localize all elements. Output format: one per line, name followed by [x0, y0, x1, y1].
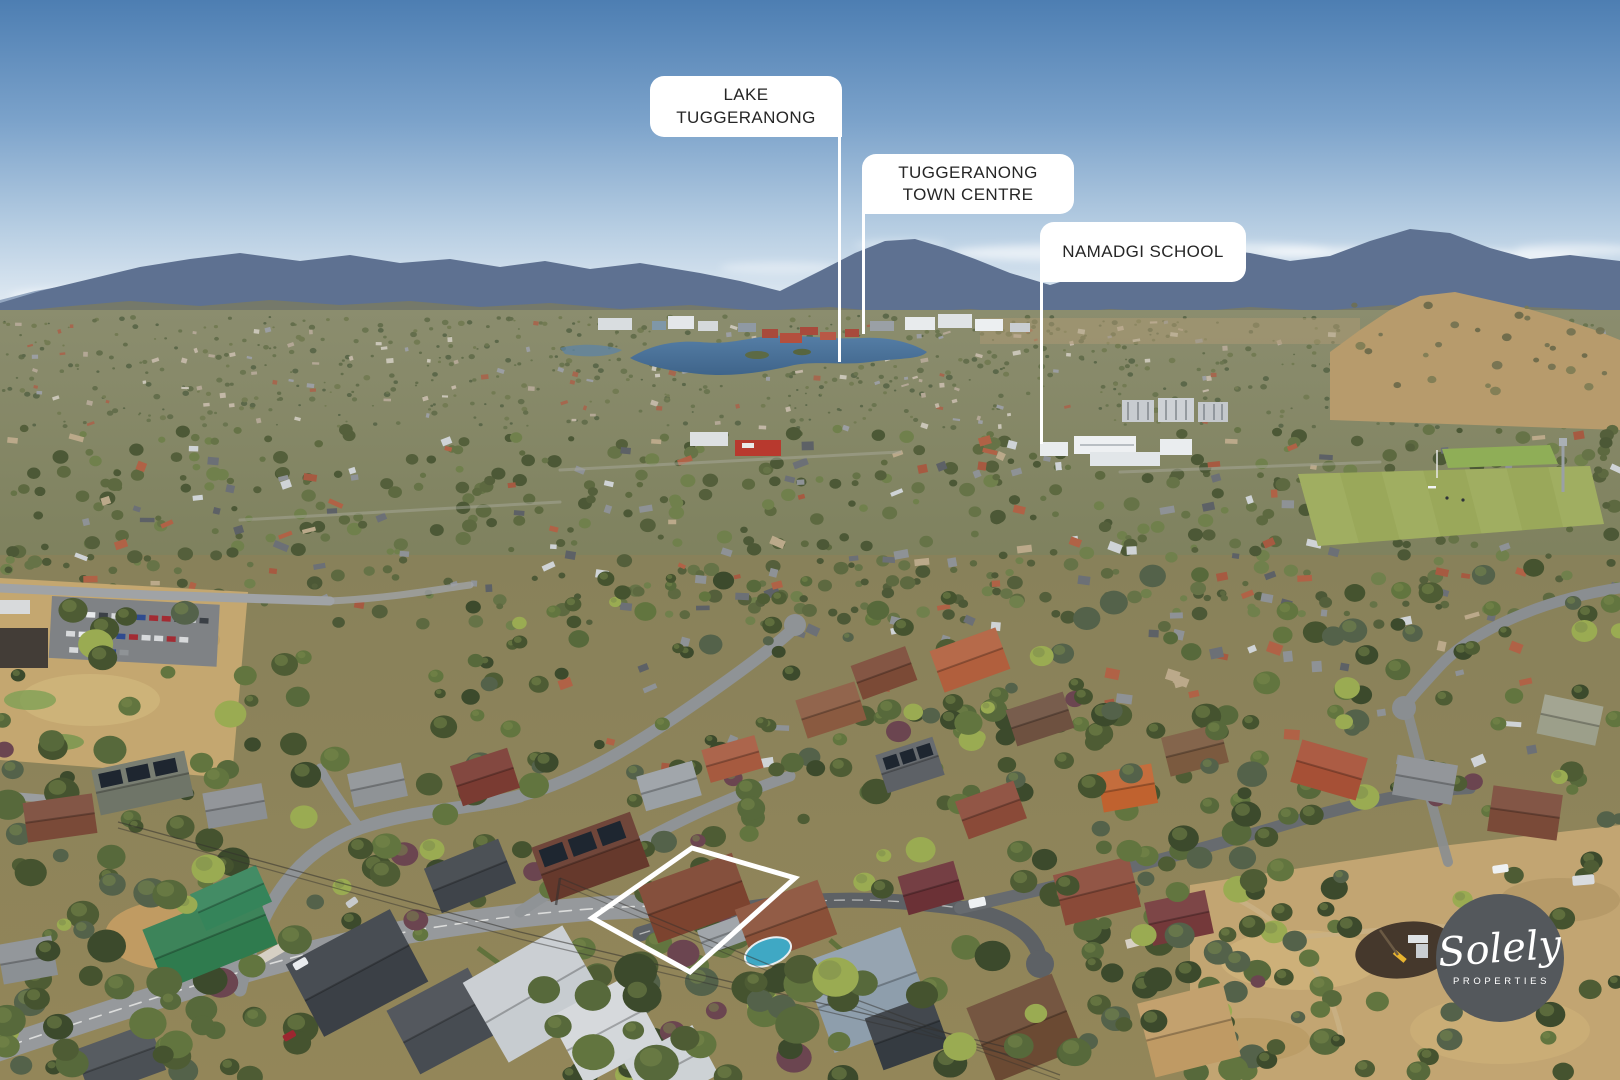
callout-lake-line-2: TUGGERANONG: [676, 107, 815, 129]
aerial-photo-scene: [0, 0, 1620, 1080]
callout-town-leader-line: [862, 214, 865, 334]
aerial-photo: LAKE TUGGERANONG TUGGERANONG TOWN CENTRE…: [0, 0, 1620, 1080]
callout-namadgi-line-1: NAMADGI SCHOOL: [1062, 241, 1223, 263]
watermark-subtitle: PROPERTIES: [1453, 976, 1550, 987]
callout-lake-leader-line: [838, 137, 841, 362]
callout-town-line-2: TOWN CENTRE: [903, 184, 1034, 206]
goal-posts: [1428, 486, 1436, 488]
callout-namadgi-leader-line: [1040, 282, 1043, 444]
callout-lake-tuggeranong: LAKE TUGGERANONG: [650, 76, 842, 137]
callout-lake-line-1: LAKE: [723, 84, 768, 106]
callout-tuggeranong-town-centre: TUGGERANONG TOWN CENTRE: [862, 154, 1074, 214]
watermark-brand: Solely: [1437, 925, 1563, 974]
callout-namadgi-school: NAMADGI SCHOOL: [1040, 222, 1246, 282]
watermark-logo: Solely PROPERTIES: [1436, 894, 1564, 1022]
callout-town-line-1: TUGGERANONG: [898, 162, 1037, 184]
